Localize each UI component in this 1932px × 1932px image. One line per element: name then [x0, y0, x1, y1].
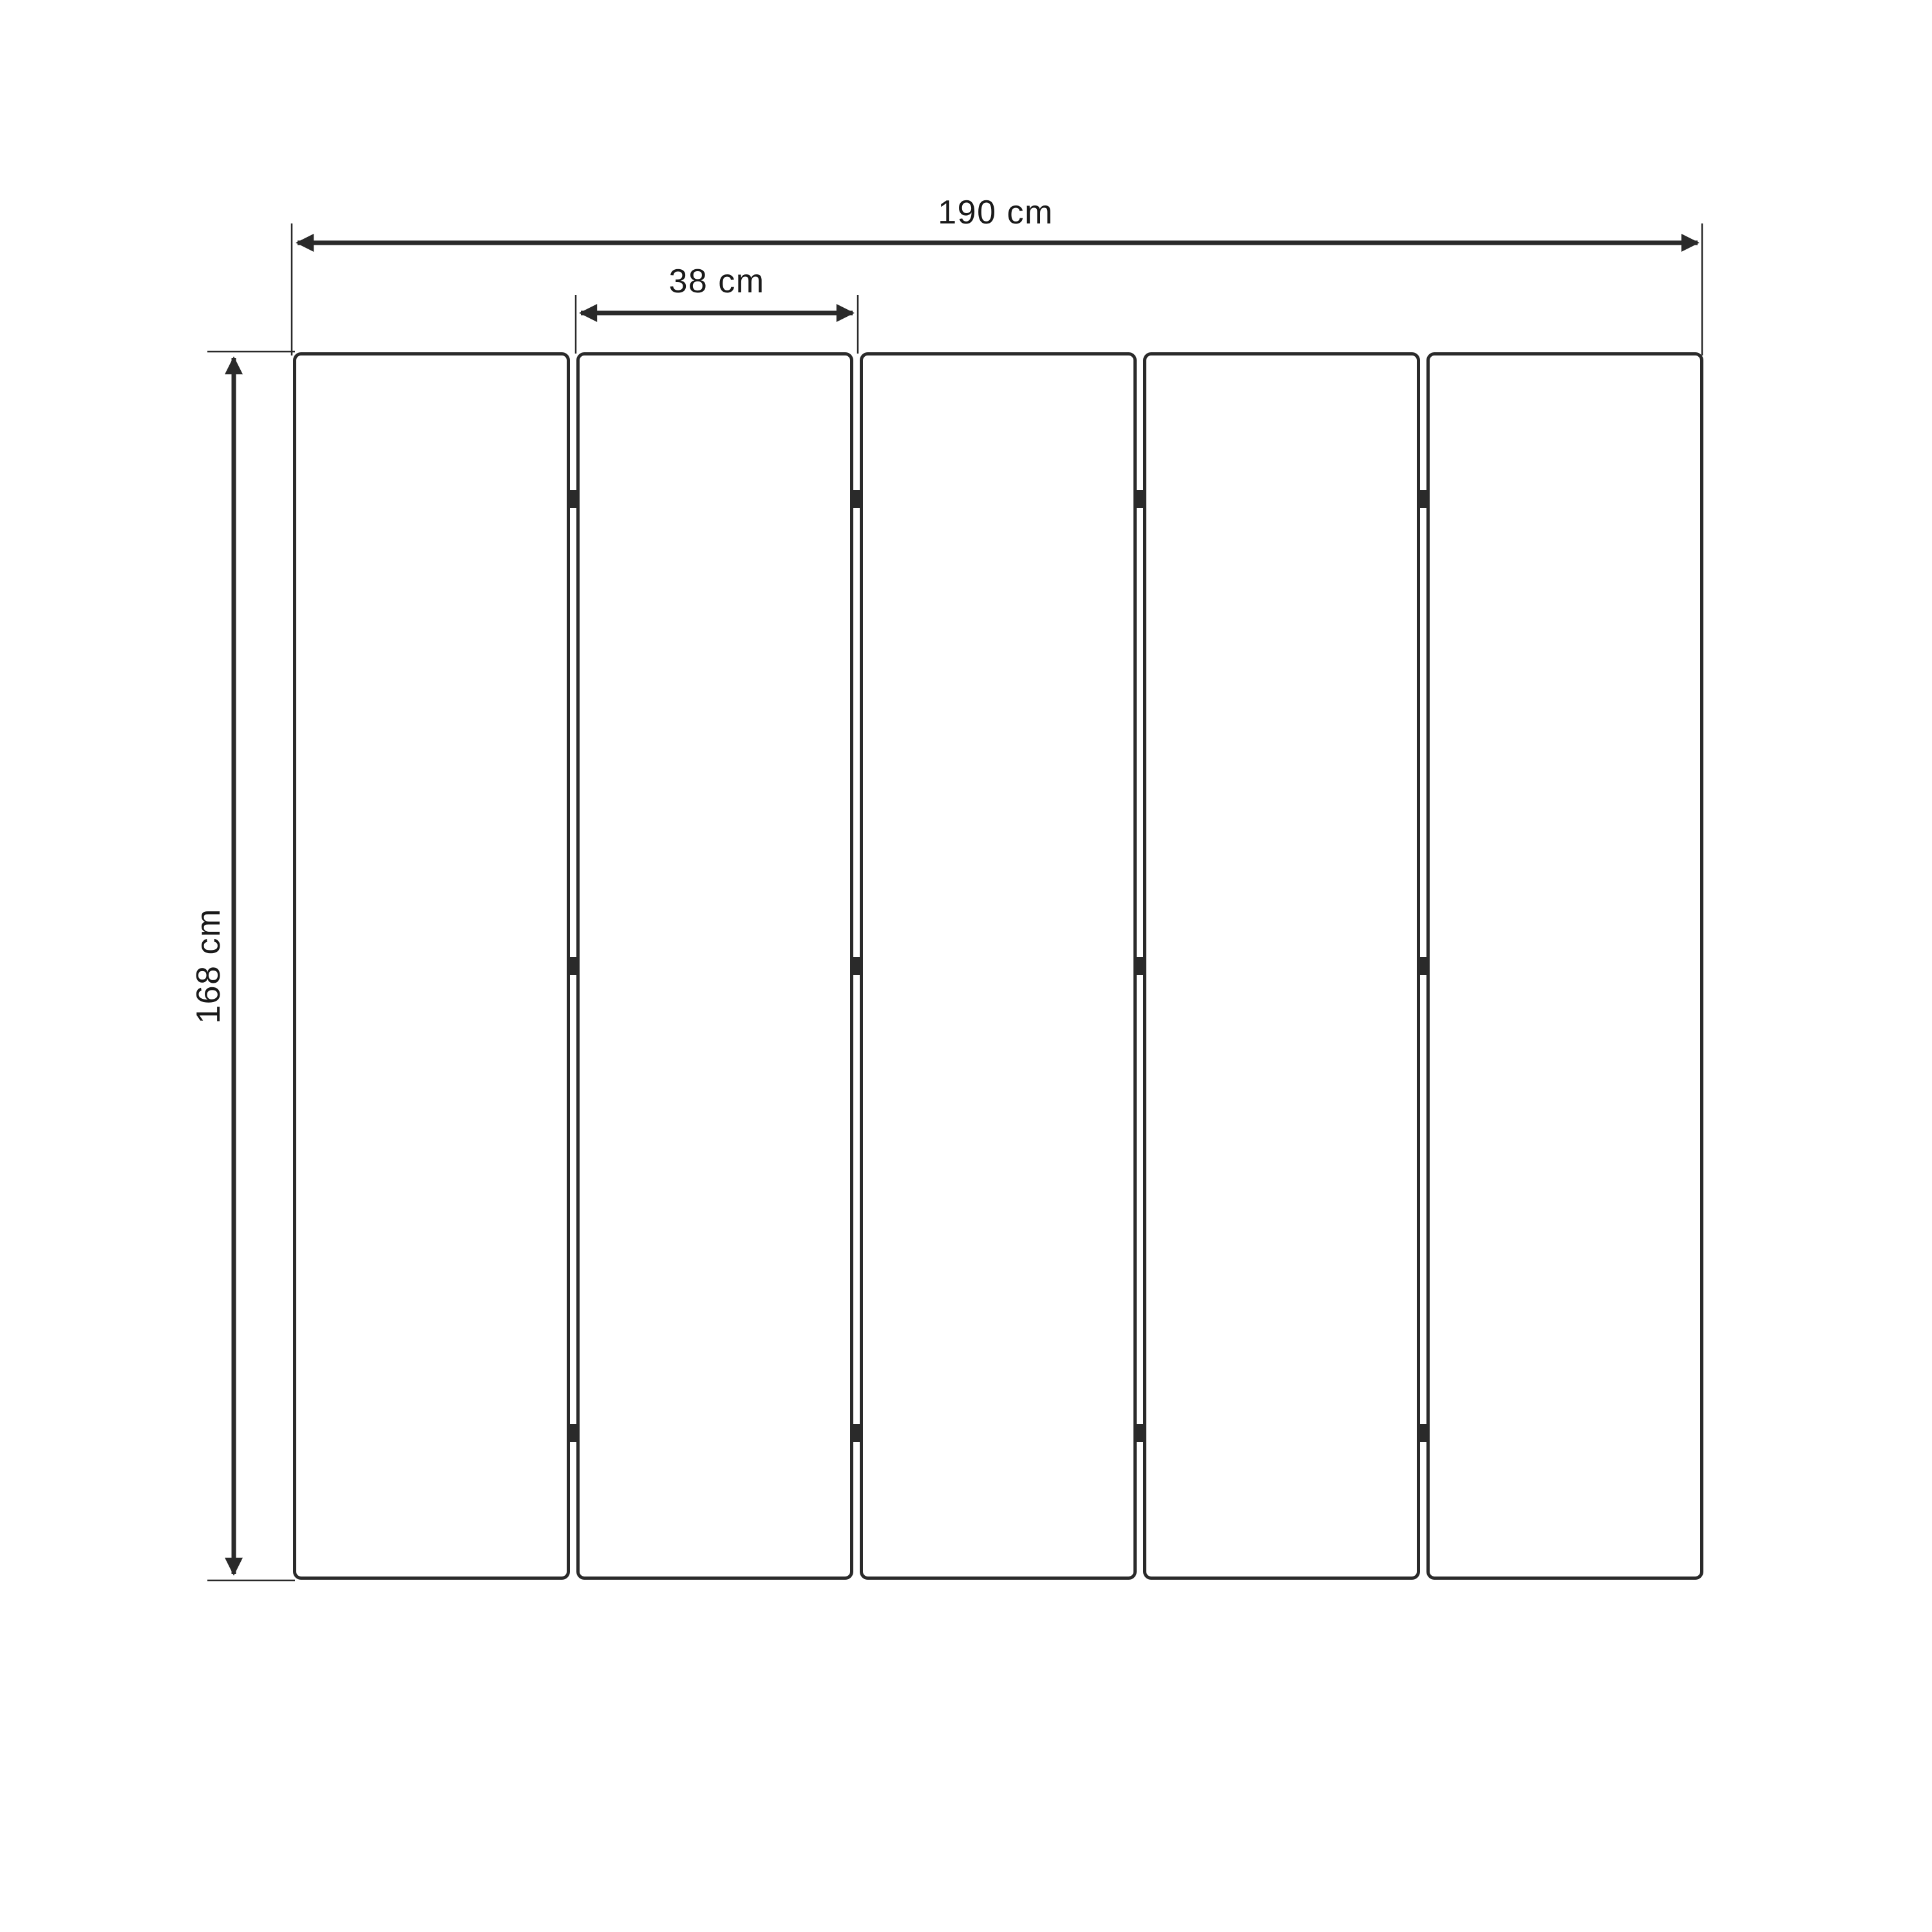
- screen-panel-3: [862, 354, 1135, 1578]
- folding-screen-dimension-diagram: 190 cm 38 cm 168 cm: [0, 0, 1932, 1932]
- screen-panel-1: [295, 354, 569, 1578]
- hinge: [1135, 490, 1145, 508]
- screen-panel-5: [1428, 354, 1702, 1578]
- hinge: [851, 490, 862, 508]
- height-label: 168 cm: [189, 908, 228, 1024]
- hinge: [1418, 1424, 1428, 1442]
- hinge: [568, 957, 578, 975]
- hinge: [1418, 957, 1428, 975]
- panel-width-label: 38 cm: [668, 262, 764, 301]
- diagram-drawing: [0, 0, 1932, 1932]
- screen-panel-2: [578, 354, 852, 1578]
- hinge: [1418, 490, 1428, 508]
- hinge: [1135, 957, 1145, 975]
- hinge: [568, 1424, 578, 1442]
- screen-panels: [295, 354, 1702, 1578]
- total-width-label: 190 cm: [938, 193, 1054, 232]
- screen-panel-4: [1145, 354, 1419, 1578]
- hinge: [568, 490, 578, 508]
- hinge: [1135, 1424, 1145, 1442]
- hinge: [851, 1424, 862, 1442]
- hinge: [851, 957, 862, 975]
